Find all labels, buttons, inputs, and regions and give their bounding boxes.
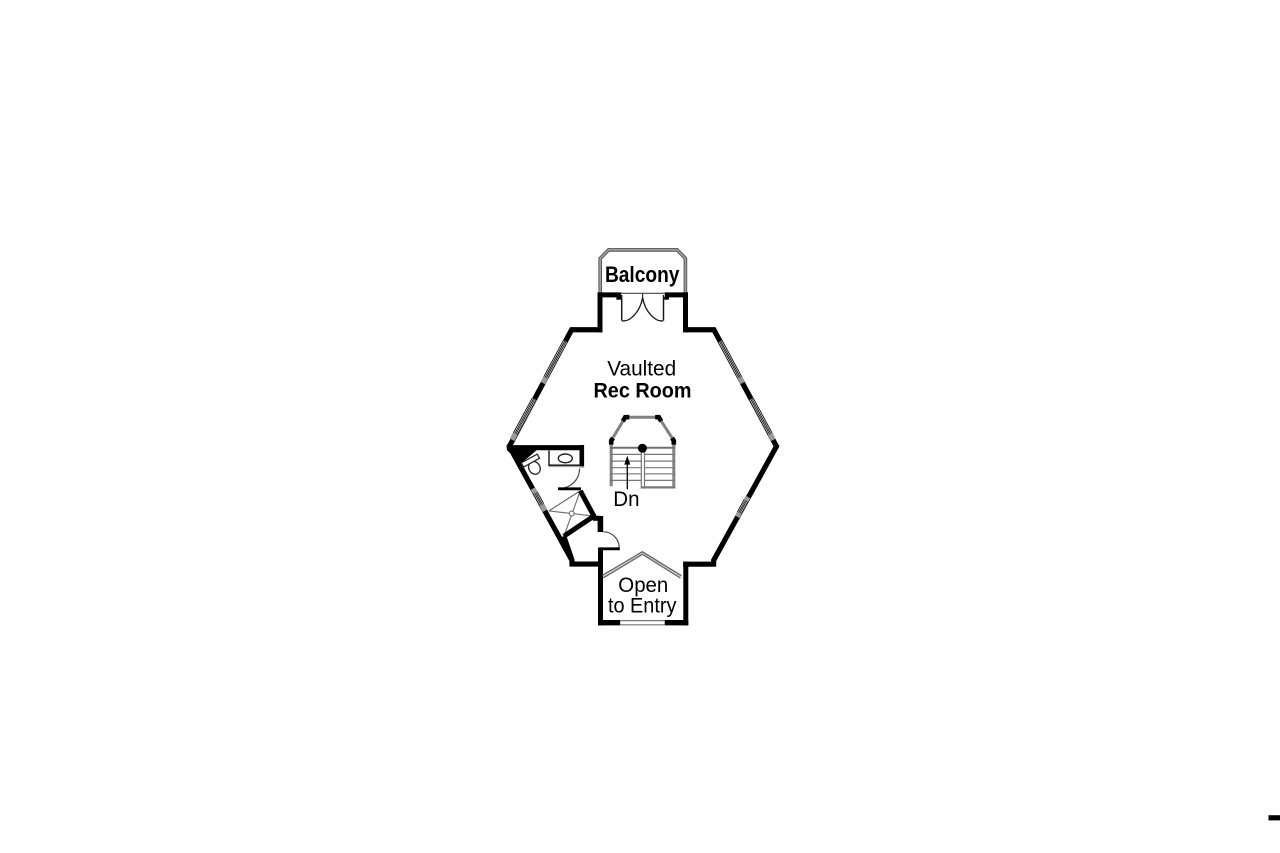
svg-text:Rec Room: Rec Room: [594, 379, 692, 403]
svg-text:to Entry: to Entry: [608, 593, 677, 618]
svg-text:Dn: Dn: [613, 488, 639, 511]
svg-text:Balcony: Balcony: [605, 262, 680, 287]
svg-text:Vaulted: Vaulted: [607, 357, 676, 381]
